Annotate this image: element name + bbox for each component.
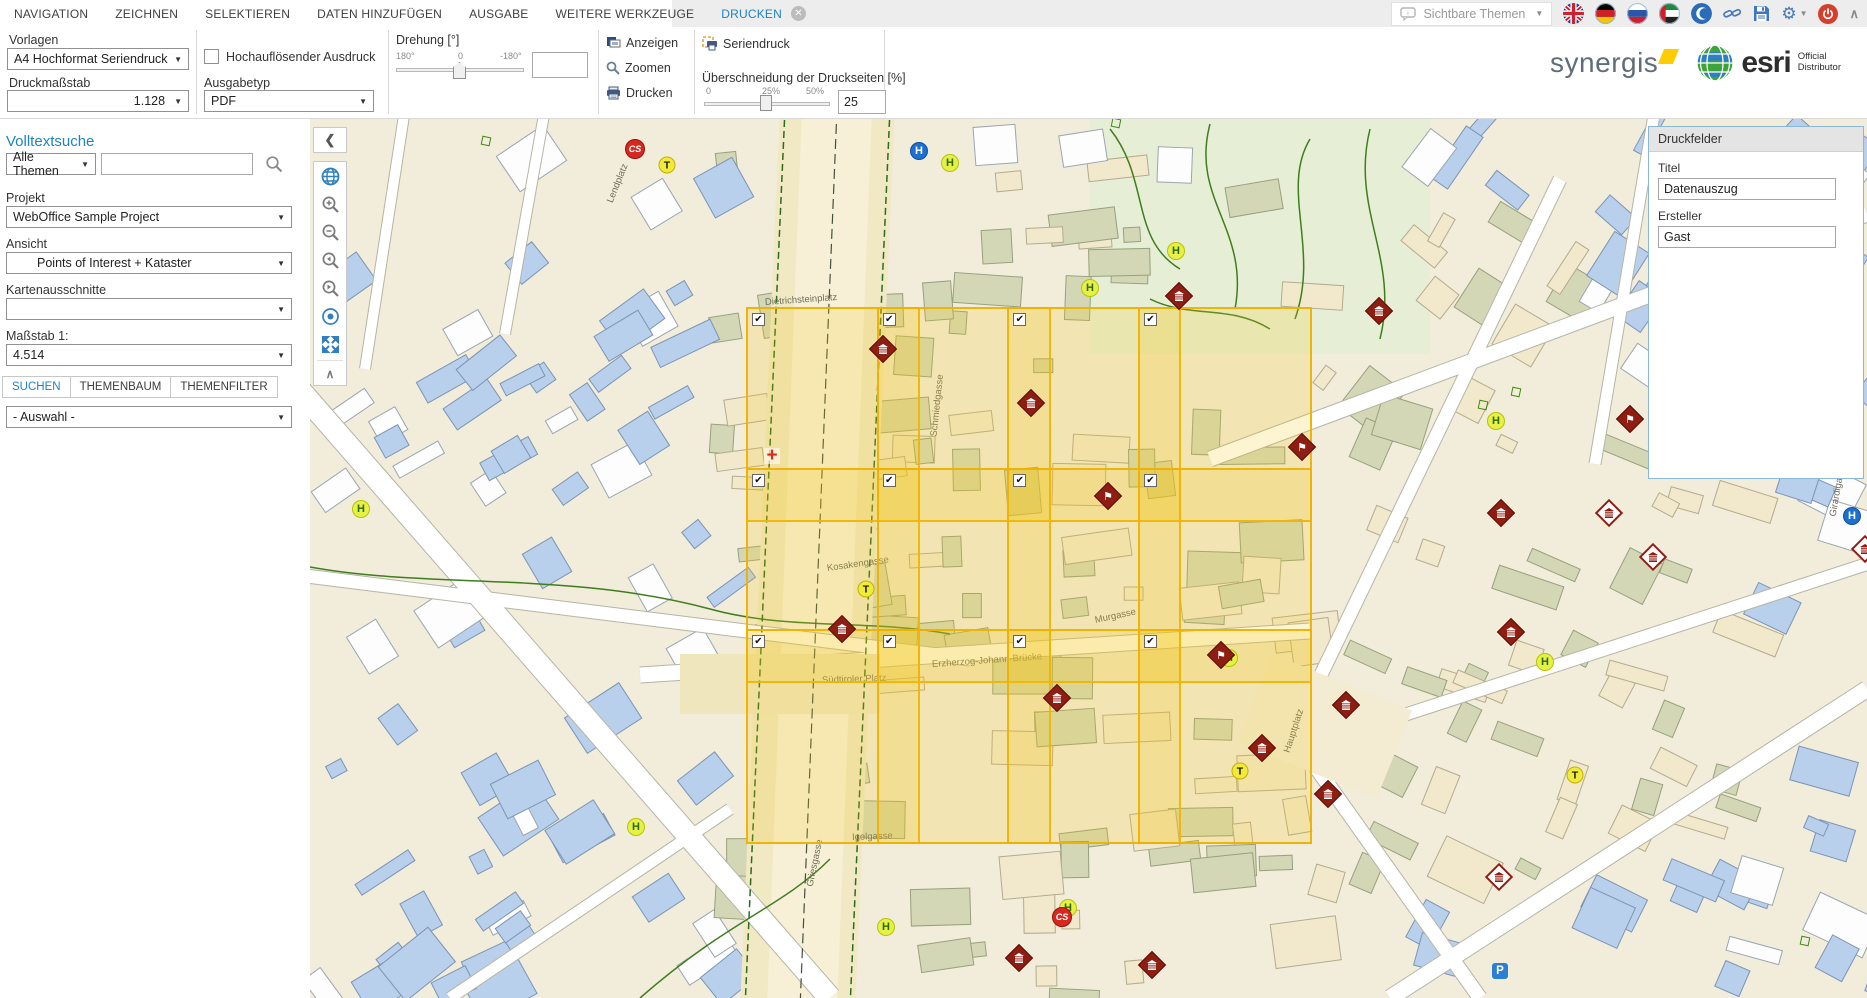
flag-icon: ⚑ <box>1212 646 1230 664</box>
synergis-logo: synergis <box>1550 47 1658 79</box>
cs-station-marker[interactable]: CS <box>1052 907 1072 927</box>
menu-item-ausgabe[interactable]: AUSGABE <box>469 7 528 21</box>
print-page-checkbox-r3c2[interactable]: ✔ <box>883 635 896 648</box>
vorlagen-label: Vorlagen <box>9 33 58 47</box>
transit-stop-marker[interactable]: H <box>1536 653 1554 671</box>
branding: synergis esri Official Distributor <box>1550 44 1841 82</box>
flag-ru-icon[interactable] <box>1627 3 1648 24</box>
drehung-tick-mid: 0 <box>458 51 463 61</box>
hochaufloesend-checkbox[interactable] <box>204 49 219 64</box>
seriendruck-button[interactable]: Seriendruck <box>702 36 790 51</box>
ausgabetyp-label: Ausgabetyp <box>204 76 270 90</box>
seriendruck-icon <box>702 36 718 51</box>
visible-themes-dropdown[interactable]: i Sichtbare Themen ▼ <box>1391 2 1552 26</box>
menu-item-drucken[interactable]: DRUCKEN <box>721 7 782 21</box>
print-page-checkbox-r1c3[interactable]: ✔ <box>1013 313 1026 326</box>
museum-icon <box>1645 549 1661 565</box>
transit-stop-marker[interactable]: H <box>1081 279 1099 297</box>
cs-station-marker[interactable]: CS <box>625 139 645 159</box>
print-page-checkbox-r2c1[interactable]: ✔ <box>752 474 765 487</box>
museum-icon <box>1253 739 1271 757</box>
link-icon[interactable] <box>1723 6 1742 21</box>
power-icon[interactable] <box>1818 4 1838 24</box>
print-page-checkbox-r1c4[interactable]: ✔ <box>1144 313 1157 326</box>
toolbar-separator <box>388 30 389 114</box>
anzeigen-button[interactable]: Anzeigen <box>606 36 678 50</box>
museum-icon <box>1491 869 1507 885</box>
taxi-marker[interactable]: T <box>858 581 875 598</box>
taxi-marker[interactable]: T <box>1567 767 1584 784</box>
drehung-label: Drehung [°] <box>396 33 459 47</box>
menu-item-weitere-werkzeuge[interactable]: WEITERE WERKZEUGE <box>555 7 694 21</box>
menu-bar: NAVIGATIONZEICHNENSELEKTIERENDATEN HINZU… <box>0 0 1867 27</box>
museum-icon <box>1143 956 1161 974</box>
drehung-input[interactable] <box>532 52 588 78</box>
chevron-down-icon: ▼ <box>1800 9 1808 18</box>
drucken-button[interactable]: Drucken <box>606 86 673 100</box>
map-nav-toolbar: ∧ <box>313 161 347 386</box>
print-page-checkbox-r2c4[interactable]: ✔ <box>1144 474 1157 487</box>
titel-label: Titel <box>1658 161 1863 175</box>
museum-icon <box>1857 541 1867 557</box>
sidebar: Volltextsuche Alle Themen▼ Projekt WebOf… <box>0 119 310 998</box>
collapse-toolbar-button[interactable]: ∧ <box>314 363 346 385</box>
ueberschneidung-tick-left: 0 <box>706 86 711 96</box>
flag-de-icon[interactable] <box>1595 3 1616 24</box>
projekt-label: Projekt <box>6 191 45 205</box>
search-input[interactable] <box>101 153 253 175</box>
print-page-checkbox-r2c2[interactable]: ✔ <box>883 474 896 487</box>
search-icon[interactable] <box>265 155 283 173</box>
save-icon[interactable] <box>1753 5 1770 22</box>
zoom-in-button[interactable] <box>314 190 346 218</box>
drehung-tick-left: 180° <box>396 51 415 61</box>
esri-globe-icon <box>1696 44 1734 82</box>
menu-item-selektieren[interactable]: SELEKTIEREN <box>205 7 290 21</box>
printer-icon <box>606 86 621 100</box>
toolbar-separator <box>598 30 599 114</box>
ersteller-input[interactable] <box>1658 226 1836 248</box>
drehung-tick-right: -180° <box>500 51 522 61</box>
transit-stop-marker[interactable]: H <box>910 142 928 160</box>
flag-icon: ⚑ <box>1099 487 1117 505</box>
magnifier-icon <box>606 61 620 75</box>
massstab-select[interactable]: 4.514▼ <box>6 344 292 366</box>
tab-themenfilter[interactable]: THEMENFILTER <box>170 376 277 398</box>
esri-logo: esri Official Distributor <box>1696 44 1841 82</box>
transit-stop-marker[interactable]: H <box>941 154 959 172</box>
museum-icon <box>874 340 892 358</box>
menu-item-daten-hinzufuegen[interactable]: DATEN HINZUFÜGEN <box>317 7 442 21</box>
transit-stop-marker[interactable]: H <box>1487 412 1505 430</box>
toolbar-separator <box>694 30 695 114</box>
druckfelder-panel: Druckfelder Titel Ersteller <box>1648 126 1864 479</box>
transit-stop-marker[interactable]: H <box>352 500 370 518</box>
svg-text:i: i <box>1408 8 1410 17</box>
green-area-icon <box>1478 400 1489 411</box>
volltextsuche-link[interactable]: Volltextsuche <box>6 133 94 150</box>
flag-icon: ⚑ <box>1293 438 1311 456</box>
green-area-icon <box>1800 936 1811 947</box>
titel-input[interactable] <box>1658 178 1836 200</box>
map-canvas[interactable]: DietrichsteinplatzKosakengasseIgelgasseG… <box>310 119 1867 998</box>
museum-icon <box>1370 302 1388 320</box>
museum-icon <box>1170 287 1188 305</box>
auswahl-select[interactable]: - Auswahl -▼ <box>6 406 292 428</box>
zoomen-button[interactable]: Zoomen <box>606 61 671 75</box>
projekt-select[interactable]: WebOffice Sample Project▼ <box>6 206 292 228</box>
print-page-checkbox-r3c4[interactable]: ✔ <box>1144 635 1157 648</box>
parking-marker[interactable]: P <box>1492 963 1508 979</box>
menu-right-icons: i Sichtbare Themen ▼ <box>1391 0 1859 27</box>
next-extent-button[interactable] <box>314 274 346 302</box>
ersteller-label: Ersteller <box>1658 209 1863 223</box>
info-bubble-icon: i <box>1400 7 1416 21</box>
themen-select[interactable]: Alle Themen▼ <box>6 153 96 175</box>
ueberschneidung-slider-thumb[interactable] <box>760 95 772 111</box>
previous-extent-button[interactable] <box>314 246 346 274</box>
ueberschneidung-input[interactable] <box>838 90 886 114</box>
kartenausschnitte-select[interactable]: ▼ <box>6 298 292 320</box>
gear-icon[interactable]: ⚙ ▼ <box>1781 4 1807 24</box>
sidebar-collapse-button[interactable]: ❮ <box>313 127 347 153</box>
pharmacy-cross-marker[interactable]: + <box>764 448 780 464</box>
full-extent-globe-button[interactable] <box>314 162 346 190</box>
ansicht-label: Ansicht <box>6 237 47 251</box>
museum-icon <box>1048 689 1066 707</box>
print-preview-icon <box>606 36 621 50</box>
ueberschneidung-tick-right: 50% <box>806 86 824 96</box>
crescent-icon[interactable] <box>1691 3 1712 24</box>
menu-item-zeichnen[interactable]: ZEICHNEN <box>115 7 178 21</box>
massstab-label: Maßstab 1: <box>6 329 69 343</box>
flag-ae-icon[interactable] <box>1659 3 1680 24</box>
toolbar-separator <box>196 30 197 114</box>
green-area-icon <box>481 136 492 147</box>
tab-suchen[interactable]: SUCHEN <box>2 376 71 398</box>
green-area-icon <box>1511 387 1522 398</box>
druckfelder-header: Druckfelder <box>1649 127 1863 152</box>
chevron-down-icon: ▼ <box>1535 9 1543 18</box>
transit-stop-marker[interactable]: H <box>1167 242 1185 260</box>
full-extent-arrows-button[interactable] <box>314 330 346 358</box>
vorlagen-select[interactable]: A4 Hochformat Seriendruck▼ <box>7 48 189 70</box>
ueberschneidung-label: Überschneidung der Druckseiten [%] <box>702 71 906 85</box>
weboffice-app: NAVIGATIONZEICHNENSELEKTIERENDATEN HINZU… <box>0 0 1867 998</box>
museum-icon <box>1319 785 1337 803</box>
museum-icon <box>1010 949 1028 967</box>
taxi-marker[interactable]: T <box>659 157 676 174</box>
museum-icon <box>1337 696 1355 714</box>
tab-themenbaum[interactable]: THEMENBAUM <box>70 376 172 398</box>
druckmassstab-select[interactable]: 1.128▼ <box>7 90 189 112</box>
transit-stop-marker[interactable]: H <box>627 818 645 836</box>
visible-themes-label: Sichtbare Themen <box>1423 7 1525 21</box>
transit-stop-marker[interactable]: H <box>877 918 895 936</box>
museum-icon <box>1492 504 1510 522</box>
ausgabetyp-select[interactable]: PDF▼ <box>204 90 374 112</box>
print-page-checkbox-r3c1[interactable]: ✔ <box>752 635 765 648</box>
print-page-checkbox-r1c1[interactable]: ✔ <box>752 313 765 326</box>
flag-uk-icon[interactable] <box>1563 3 1584 24</box>
green-area-icon <box>1111 119 1122 128</box>
print-page-checkbox-r3c3[interactable]: ✔ <box>1013 635 1026 648</box>
close-tab-icon[interactable]: ✕ <box>791 6 806 21</box>
kartenausschnitte-label: Kartenausschnitte <box>6 283 106 297</box>
print-page-checkbox-r2c3[interactable]: ✔ <box>1013 474 1026 487</box>
ansicht-select[interactable]: Points of Interest + Kataster▼ <box>6 252 292 274</box>
museum-icon <box>1601 505 1617 521</box>
taxi-marker[interactable]: T <box>1232 763 1249 780</box>
druckmassstab-label: Druckmaßstab <box>9 76 90 90</box>
hochaufloesend-label: Hochauflösender Ausdruck <box>226 50 375 64</box>
collapse-up-icon[interactable]: ∧ <box>1849 6 1859 22</box>
print-page-checkbox-r1c2[interactable]: ✔ <box>883 313 896 326</box>
center-map-button[interactable] <box>314 302 346 330</box>
flag-icon: ⚑ <box>1621 410 1639 428</box>
museum-icon <box>833 620 851 638</box>
synergis-parallelogram <box>1658 49 1679 64</box>
menu-item-navigation[interactable]: NAVIGATION <box>14 7 88 21</box>
museum-icon <box>1502 623 1520 641</box>
menu-items: NAVIGATIONZEICHNENSELEKTIERENDATEN HINZU… <box>14 0 806 27</box>
transit-stop-marker[interactable]: H <box>1843 507 1861 525</box>
museum-icon <box>1022 394 1040 412</box>
zoom-out-button[interactable] <box>314 218 346 246</box>
sidebar-tabs: SUCHENTHEMENBAUMTHEMENFILTER <box>2 376 277 398</box>
toolbar-divider <box>317 360 343 361</box>
drehung-slider-thumb[interactable] <box>453 62 466 79</box>
